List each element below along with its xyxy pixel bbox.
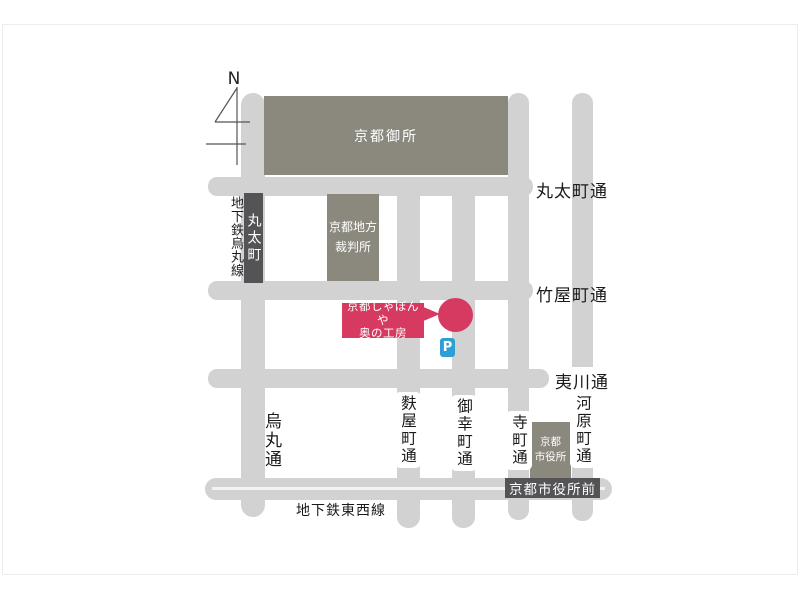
karasuma-dori-label: 烏丸通 <box>259 412 284 469</box>
takeyamachi-dori-label: 竹屋町通 <box>536 281 608 306</box>
north-compass: N <box>198 60 258 170</box>
shop-label: 京都しゃぼんや 奥の工房 <box>342 303 424 338</box>
ebisugawa-dori-label: 夷川通 <box>552 367 612 394</box>
parking-icon: P <box>440 338 455 357</box>
shop-location-marker <box>438 298 473 332</box>
courthouse-label-line1: 京都地方 <box>329 220 377 234</box>
karasuma-subway-line-label: 地下鉄烏丸線 <box>226 196 245 277</box>
palace-label: 京都御所 <box>354 126 418 146</box>
street-gokomachi-dori <box>452 180 475 528</box>
street-fuyacho-dori <box>397 180 420 528</box>
gokomachi-dori-label: 御幸町通 <box>451 395 477 471</box>
kyoto-district-court-block: 京都地方 裁判所 <box>327 194 379 281</box>
kyoto-access-map: 京都御所 京都地方 裁判所 京都 市役所 丸太町 京都市役所前 地下鉄烏丸線 地… <box>0 0 800 598</box>
cityhall-label-line2: 市役所 <box>535 451 567 463</box>
shop-name-line1: 京都しゃぼんや <box>342 300 424 328</box>
kawaramachi-dori-label: 河原町通 <box>570 392 596 468</box>
teramachi-dori-label: 寺町通 <box>506 411 532 470</box>
station-badge-shiyakushomae: 京都市役所前 <box>505 478 600 498</box>
tozai-subway-line-label: 地下鉄東西線 <box>296 500 386 520</box>
shiyakushomae-station-label: 京都市役所前 <box>509 478 596 498</box>
marutamachi-station-label: 丸太町 <box>244 213 264 264</box>
courthouse-label-line2: 裁判所 <box>335 240 371 254</box>
compass-diagonal <box>215 88 237 122</box>
kyoto-imperial-palace-block: 京都御所 <box>264 96 508 175</box>
street-takeyamachi-dori <box>208 281 533 300</box>
street-ebisugawa-dori <box>208 369 549 388</box>
kyoto-city-hall-block: 京都 市役所 <box>530 422 571 478</box>
shop-name-line2: 奥の工房 <box>359 327 407 341</box>
marutamachi-dori-label: 丸太町通 <box>536 177 608 202</box>
station-badge-marutamachi: 丸太町 <box>244 193 263 283</box>
fuyacho-dori-label: 麩屋町通 <box>395 392 421 468</box>
compass-north-letter: N <box>228 69 241 89</box>
cityhall-label-line1: 京都 <box>540 436 561 448</box>
